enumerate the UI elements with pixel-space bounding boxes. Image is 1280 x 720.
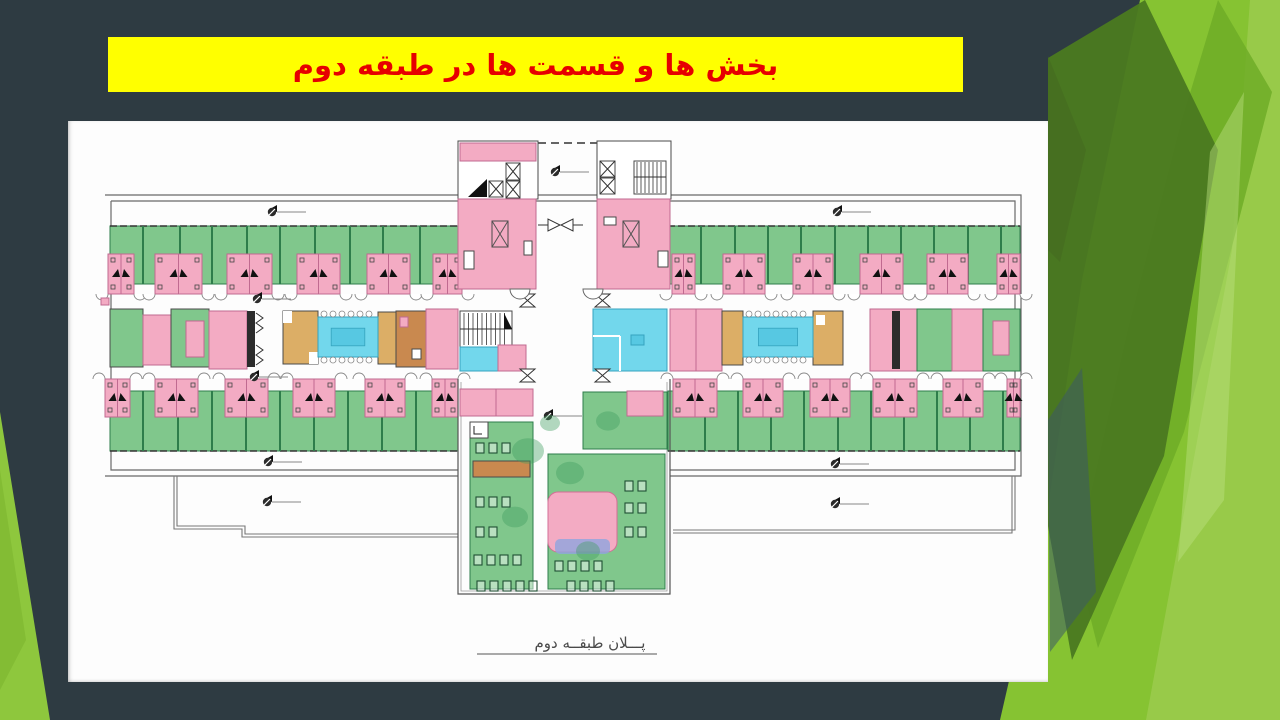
title-banner: بخش ها و قسمت ها در طبقه دوم bbox=[108, 37, 963, 92]
wedge-polygon bbox=[0, 470, 26, 690]
bottom-left-green-wedge bbox=[0, 412, 50, 720]
facet-polygon bbox=[1076, 0, 1272, 648]
floor-plan-svg: پـــلان طبقــه دوم bbox=[68, 121, 1048, 682]
middle-band-right bbox=[670, 309, 1020, 371]
plan-caption-text: پـــلان طبقــه دوم bbox=[535, 634, 646, 653]
facet-polygon bbox=[1178, 92, 1244, 562]
floor-plan-image: پـــلان طبقــه دوم bbox=[68, 121, 1048, 682]
facet-polygon bbox=[1048, 56, 1086, 262]
sanitary-cells-top bbox=[96, 254, 1032, 300]
top-room-row bbox=[96, 226, 1032, 300]
top-towers bbox=[458, 141, 671, 299]
bottom-room-row bbox=[93, 373, 1032, 451]
middle-band-left bbox=[101, 298, 458, 369]
facet-polygon bbox=[1146, 0, 1280, 720]
entry-door-icon bbox=[538, 219, 583, 231]
facet-polygon bbox=[1048, 368, 1096, 652]
facet-polygon bbox=[1048, 0, 1218, 660]
plan-caption: پـــلان طبقــه دوم bbox=[477, 634, 657, 654]
wedge-polygon bbox=[0, 412, 50, 720]
central-core bbox=[460, 294, 667, 382]
slide: { "banner": { "text": "بخش ها و قسمت ها … bbox=[0, 0, 1280, 720]
slide-title: بخش ها و قسمت ها در طبقه دوم bbox=[293, 48, 778, 82]
sanitary-cells-bottom bbox=[93, 373, 1032, 417]
